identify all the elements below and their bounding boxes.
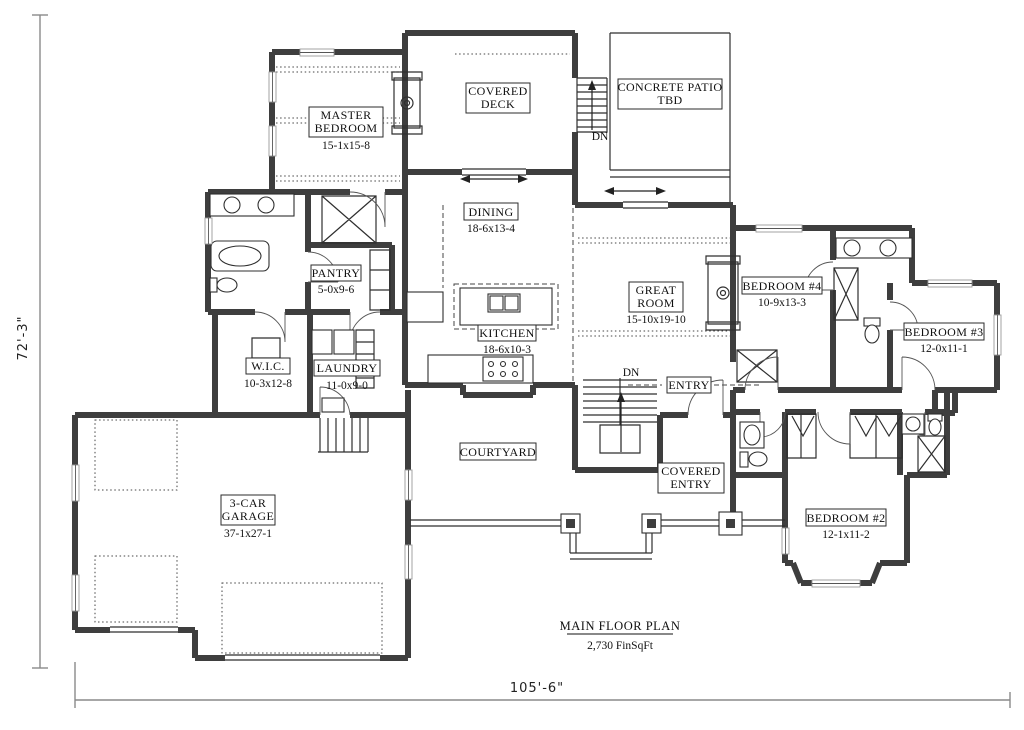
bedroom3-label: BEDROOM #3 12-0x11-1 <box>904 323 984 355</box>
width-dimension-text: 105'-6" <box>510 681 564 696</box>
fireplaces <box>392 72 740 330</box>
burner-icon <box>513 362 518 367</box>
down-annotation: DN <box>592 131 609 143</box>
range-cooktop <box>483 357 523 381</box>
sink-basin-icon <box>505 296 518 310</box>
burner-icon <box>513 372 518 377</box>
room-dims: 18-6x10-3 <box>483 344 531 356</box>
room-name: ENTRY <box>670 477 711 491</box>
greatroom-fireplace-vent-inner-icon <box>721 291 726 296</box>
porch-post-core <box>566 519 575 528</box>
closets-and-millwork <box>252 196 945 472</box>
room-name: COURTYARD <box>460 445 536 459</box>
room-name: GARAGE <box>222 509 274 523</box>
arrowhead-icon <box>604 187 614 195</box>
ceiling-treatment-dots <box>95 54 730 653</box>
burner-icon <box>489 372 494 377</box>
room-dims: 15-10x19-10 <box>626 314 686 326</box>
master-vanity <box>210 194 294 216</box>
entry-label: ENTRY <box>667 377 711 393</box>
entry-stairs <box>583 378 657 453</box>
room-name: DINING <box>468 205 513 219</box>
plan-area: 2,730 FinSqFt <box>587 640 654 652</box>
room-name: W.I.C. <box>251 359 285 373</box>
wic-label: W.I.C. 10-3x12-8 <box>244 358 292 390</box>
room-dims: 10-9x13-3 <box>758 297 806 309</box>
kitchen-label: KITCHEN 18-6x10-3 <box>478 325 536 356</box>
sink-basin-icon <box>490 296 503 310</box>
floor-plan-page: MASTER BEDROOM 15-1x15-8 COVERED DECK CO… <box>0 0 1024 730</box>
walls-layer <box>75 33 997 658</box>
room-dims: 12-0x11-1 <box>920 343 968 355</box>
sink-icon <box>906 417 920 431</box>
sink-icon <box>224 197 240 213</box>
burner-icon <box>501 362 506 367</box>
room-dims: 15-1x15-8 <box>322 140 370 152</box>
toilet-tank-icon <box>210 278 217 292</box>
room-name: MASTER <box>320 108 371 122</box>
master-bedroom-label: MASTER BEDROOM 15-1x15-8 <box>309 107 383 152</box>
toilet-icon <box>929 419 941 435</box>
room-name: COVERED <box>661 464 720 478</box>
arrowhead-icon <box>460 175 470 183</box>
height-dimension-text: 72'-3" <box>16 315 31 360</box>
exterior-interior-walls <box>75 33 997 658</box>
garage-stairs <box>318 418 368 452</box>
room-name: ENTRY <box>668 378 709 392</box>
arrowhead-icon <box>656 187 666 195</box>
bedroom2-label: BEDROOM #2 12-1x11-2 <box>806 509 886 541</box>
greatroom-fireplace-vent-icon <box>717 287 729 299</box>
room-name: BEDROOM #3 <box>904 325 983 339</box>
room-name: GREAT <box>636 283 677 297</box>
plan-title: MAIN FLOOR PLAN <box>560 619 681 633</box>
burner-icon <box>501 372 506 377</box>
dotted-lines-layer <box>95 54 760 653</box>
covered-entry-label: COVERED ENTRY <box>658 463 724 493</box>
concrete-patio-label: CONCRETE PATIO TBD <box>618 79 723 109</box>
porch-post-core <box>647 519 656 528</box>
arrowhead-icon <box>518 175 528 183</box>
toilet-icon <box>749 452 767 466</box>
garage-label: 3-CAR GARAGE 37-1x27-1 <box>221 495 275 540</box>
sink-icon <box>258 197 274 213</box>
toilet-icon <box>217 278 237 292</box>
washer <box>312 330 332 354</box>
sink-icon <box>744 425 760 445</box>
pantry-label: PANTRY 5-0x9-6 <box>311 265 361 296</box>
burner-icon <box>489 362 494 367</box>
title-block: MAIN FLOOR PLAN 2,730 FinSqFt <box>560 619 681 652</box>
dining-label: DINING 18-6x13-4 <box>464 203 518 235</box>
room-name: COVERED <box>468 84 527 98</box>
room-dims: 18-6x13-4 <box>467 223 515 235</box>
dryer <box>334 330 354 354</box>
room-name: CONCRETE PATIO <box>618 80 723 94</box>
room-name: BEDROOM #2 <box>806 511 885 525</box>
room-dims: 37-1x27-1 <box>224 528 272 540</box>
room-name: ROOM <box>637 296 675 310</box>
room-name: LAUNDRY <box>317 361 378 375</box>
floor-plan-drawing: MASTER BEDROOM 15-1x15-8 COVERED DECK CO… <box>0 0 1024 730</box>
bathtub-basin-icon <box>219 246 261 266</box>
great-room-label: GREAT ROOM 15-10x19-10 <box>626 282 686 326</box>
porch-post-core <box>726 519 735 528</box>
bedroom4-label: BEDROOM #4 10-9x13-3 <box>742 277 822 309</box>
courtyard-label: COURTYARD <box>460 443 536 460</box>
toilet-icon <box>865 325 879 343</box>
garage-doors <box>110 627 380 660</box>
sink-icon <box>880 240 896 256</box>
room-name: BEDROOM #4 <box>742 279 821 293</box>
room-dims: 10-3x12-8 <box>244 378 292 390</box>
room-name: TBD <box>657 93 682 107</box>
covered-deck-label: COVERED DECK <box>466 83 530 113</box>
room-name: KITCHEN <box>479 326 534 340</box>
room-dims: 11-0x9-0 <box>326 380 368 392</box>
laundry-sink <box>322 398 344 412</box>
refrigerator <box>407 292 443 322</box>
sink-icon <box>844 240 860 256</box>
room-dims: 12-1x11-2 <box>822 529 870 541</box>
room-name: BEDROOM <box>315 121 378 135</box>
down-annotation: DN <box>623 367 640 379</box>
room-name: DECK <box>481 97 515 111</box>
room-dims: 5-0x9-6 <box>318 284 355 296</box>
toilet-tank-icon <box>740 452 748 467</box>
room-name: 3-CAR <box>230 496 267 510</box>
room-name: PANTRY <box>312 266 361 280</box>
